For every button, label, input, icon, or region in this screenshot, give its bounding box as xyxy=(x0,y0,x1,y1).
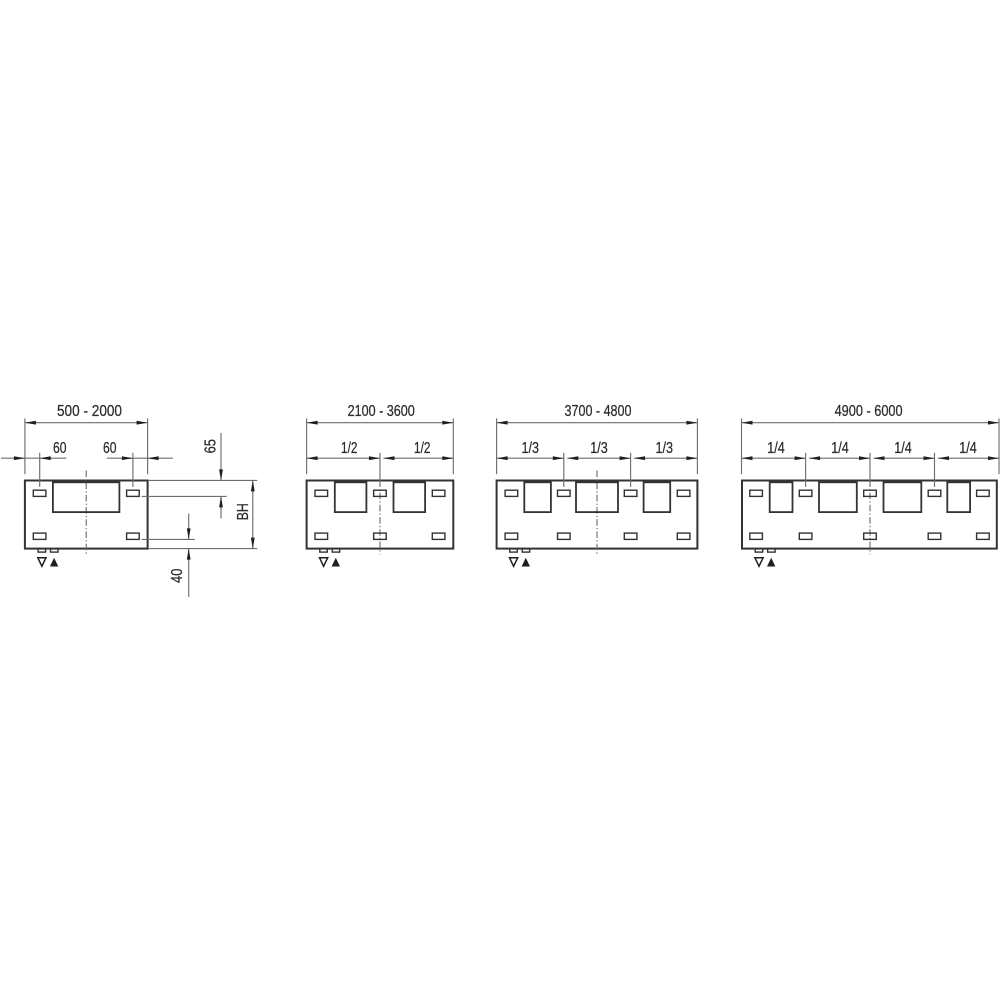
svg-text:1/4: 1/4 xyxy=(831,440,849,457)
svg-text:2100 - 3600: 2100 - 3600 xyxy=(348,403,415,420)
svg-text:1/3: 1/3 xyxy=(656,440,674,457)
svg-text:3700 - 4800: 3700 - 4800 xyxy=(565,403,632,420)
svg-text:40: 40 xyxy=(169,568,186,582)
svg-text:60: 60 xyxy=(53,440,67,457)
svg-text:500 - 2000: 500 - 2000 xyxy=(57,403,122,420)
svg-text:1/2: 1/2 xyxy=(341,440,357,457)
svg-text:65: 65 xyxy=(203,439,220,453)
svg-text:BH: BH xyxy=(235,503,252,520)
svg-text:1/4: 1/4 xyxy=(959,440,977,457)
svg-text:1/4: 1/4 xyxy=(894,440,912,457)
svg-text:60: 60 xyxy=(103,440,117,457)
svg-text:1/3: 1/3 xyxy=(522,440,540,457)
svg-text:1/4: 1/4 xyxy=(767,440,785,457)
svg-text:1/2: 1/2 xyxy=(414,440,430,457)
svg-text:4900 - 6000: 4900 - 6000 xyxy=(835,403,903,420)
svg-text:1/3: 1/3 xyxy=(590,440,608,457)
